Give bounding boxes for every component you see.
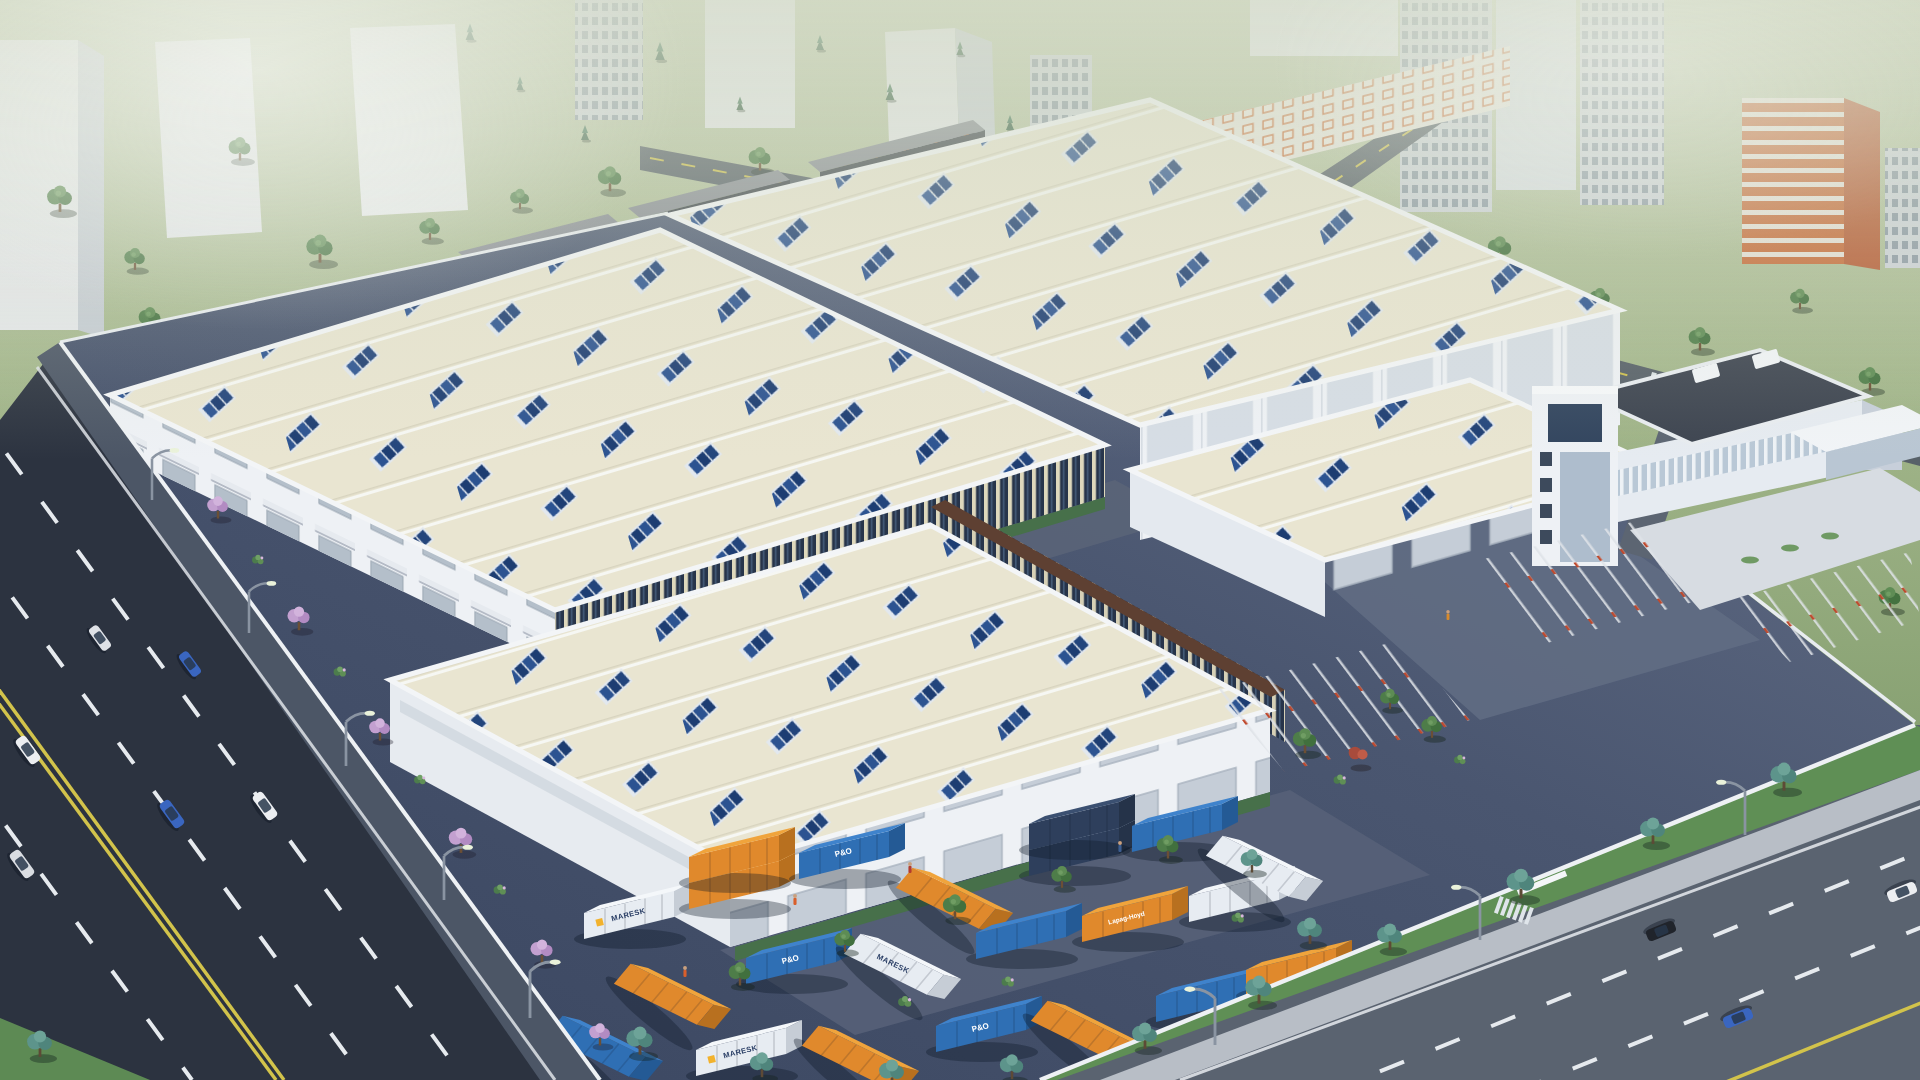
planter <box>1781 545 1799 552</box>
haze-overlay <box>0 0 1920 460</box>
person <box>683 966 687 977</box>
tower-window <box>1540 478 1552 492</box>
tower-window <box>1540 530 1552 544</box>
planter <box>1821 533 1839 540</box>
person <box>1118 841 1122 852</box>
person <box>908 862 912 873</box>
person <box>793 894 797 905</box>
person <box>1446 610 1450 620</box>
tower-window <box>1540 504 1552 518</box>
planter <box>1741 557 1759 564</box>
industrial-park-render: MARESK P&O P&O MARESK Lapag-Hoyd MARESK … <box>0 0 1920 1080</box>
